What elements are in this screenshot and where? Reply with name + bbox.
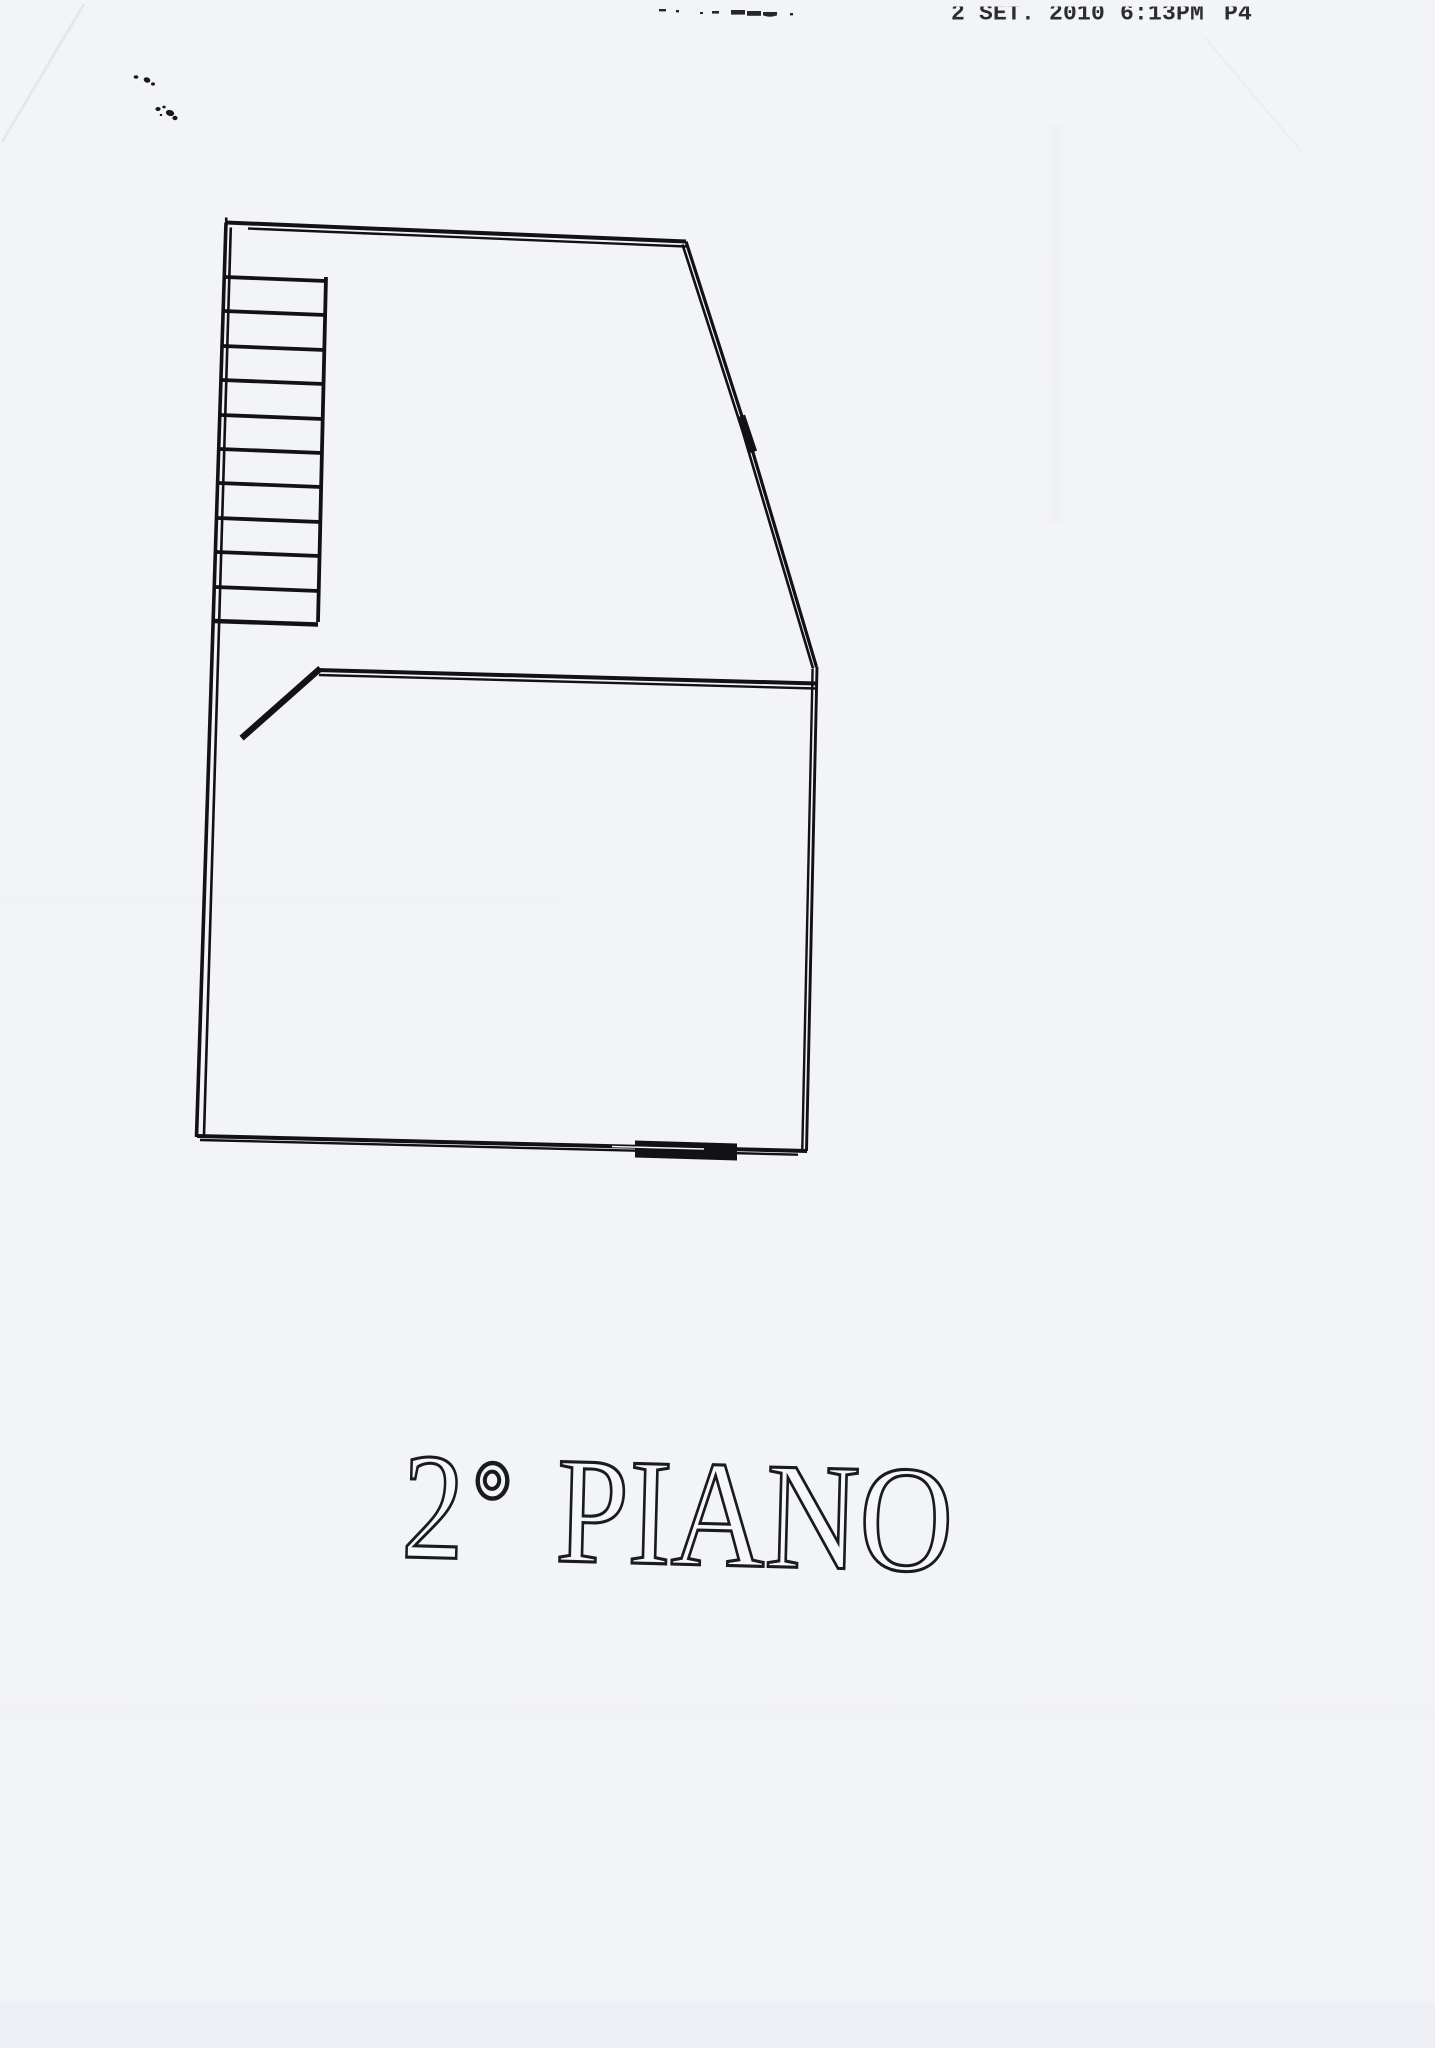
svg-text:2: 2 xyxy=(400,1422,466,1592)
svg-text:PIANO: PIANO xyxy=(554,1426,955,1604)
